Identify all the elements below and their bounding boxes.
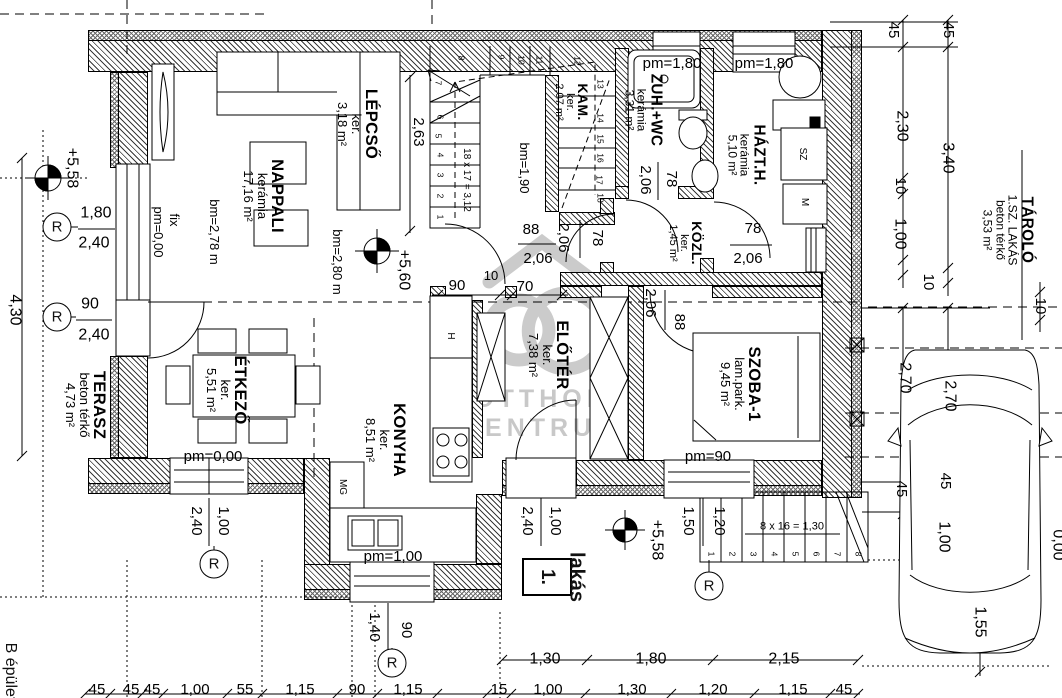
stair-number: 2 (728, 552, 737, 557)
appliance-label: SZ (797, 148, 807, 161)
stair-number: 17 (595, 175, 604, 184)
room-label: NAPPALIkerámia17,16 m² (242, 159, 286, 233)
room-label: ÉTKEZŐker.5,51 m² (205, 355, 249, 424)
dimension-label: 2,70 (941, 380, 958, 411)
wall-segment (545, 75, 559, 212)
radiator-marker: R (695, 572, 724, 601)
dimension-label: 1,30 (617, 682, 646, 698)
stair-number: 1 (707, 552, 716, 557)
stair-number: 14 (596, 113, 605, 122)
dimension-label: 1,00 (533, 682, 562, 698)
watermark-line2: CENTRUM (462, 414, 622, 443)
dimension-label: 1,30 (529, 652, 560, 669)
wall-segment (118, 72, 148, 168)
room-label: KONYHAker.8,51 m² (364, 403, 408, 477)
dimension-label: +5,60 (395, 250, 412, 290)
car-top-view-icon (888, 350, 1052, 653)
dimension-label: fix (167, 214, 181, 227)
stair-number: 6 (812, 552, 821, 557)
wall-segment (700, 48, 714, 198)
wall-segment (472, 300, 483, 458)
dimension-label: 1,00 (547, 506, 563, 535)
dimension-label: 2,06 (733, 251, 762, 267)
dimension-label: +5,58 (648, 520, 665, 560)
dimension-label: 1,00 (935, 521, 952, 552)
stair-formula: 8 x 16 = 1,30 (760, 521, 824, 532)
floor-plan: OTTHON CENTRUM (0, 0, 1062, 698)
dimension-label: 2,40 (78, 328, 109, 345)
dimension-label: 45 (123, 682, 140, 698)
stair-number: 3 (749, 552, 758, 557)
dimension-label: 1,15 (285, 682, 314, 698)
dimension-label: 90 (398, 622, 414, 639)
dimension-label: pm=0,00 (151, 207, 165, 258)
dimension-label: 2,40 (188, 506, 204, 535)
dimension-label: 45 (885, 22, 901, 39)
room-label: TÁROLÓ1.SZ. LAKÁSbeton térkő3,53 m² (981, 195, 1034, 266)
dimension-label: 10 (1032, 298, 1048, 315)
unit-number: 1. (536, 569, 558, 585)
stair-number: 1 (436, 215, 445, 220)
dimension-label: 10 (920, 274, 936, 291)
dimension-label: 1,15 (778, 682, 807, 698)
dimension-label: 45 (144, 682, 161, 698)
wall-segment (560, 272, 822, 286)
dimension-label: 2,63 (410, 117, 426, 146)
otthon-centrum-logo-icon (467, 230, 617, 380)
dimension-label: 78 (663, 171, 679, 188)
wall-segment (118, 356, 148, 458)
dimension-label: 45 (89, 682, 106, 698)
stair-number: 15 (596, 134, 605, 143)
wall-segment (615, 186, 629, 199)
dimension-label: 2,15 (768, 652, 799, 669)
dimension-label: 15 (491, 682, 508, 698)
dimension-label: 1,50 (680, 506, 696, 535)
insulation-strip (502, 485, 822, 496)
room-label: LÉPCSŐker.3,18 m² (336, 89, 380, 159)
dimension-label: 90 (81, 297, 99, 314)
dimension-label: 1,40 (366, 612, 382, 641)
wall-segment (628, 286, 644, 460)
stair-number: 3 (436, 173, 445, 178)
stair-number: 7 (833, 552, 842, 557)
dimension-label: 1,15 (393, 682, 422, 698)
dimension-label: 3,40 (939, 142, 956, 173)
dimension-label: bm=2,80 m (330, 229, 344, 294)
dimension-label: 88 (671, 314, 687, 331)
stair-number: 8 (854, 552, 863, 557)
appliance-label: MG (337, 479, 347, 495)
appliance-label: M (799, 198, 809, 206)
radiator-marker: R (378, 649, 407, 678)
room-label: TERASZbeton térkő4,73 m² (64, 371, 108, 439)
stair-number: 6 (436, 115, 445, 120)
dimension-label: 2,70 (896, 362, 913, 393)
room-label: KÖZL.ker.1,45 m² (666, 221, 704, 265)
dimension-label: 2,06 (642, 288, 658, 317)
building-label: B épület (1, 643, 19, 698)
insulation-strip (88, 483, 304, 494)
dimension-label: 45 (893, 481, 909, 498)
stair-number: 13 (596, 79, 605, 88)
stair-number: 16 (596, 153, 605, 162)
watermark-line1: OTTHON (462, 385, 622, 414)
stair-number: 7 (434, 81, 443, 86)
dimension-label: 2,40 (519, 506, 535, 535)
dimension-label: 2,40 (78, 236, 109, 253)
radiator-marker: R (200, 550, 229, 579)
stair-number: 2 (436, 194, 445, 199)
dimension-label: bm=1,90 (517, 143, 531, 194)
room-label: SZOBA-1lam.park.9,45 m² (719, 346, 763, 421)
insulation-strip (110, 356, 119, 458)
watermark: OTTHON CENTRUM (462, 230, 622, 443)
dimension-label: 45 (940, 22, 956, 39)
dimension-label: pm=90 (685, 449, 731, 465)
dimension-label: 1,20 (698, 682, 727, 698)
dimension-label: 90 (349, 682, 366, 698)
wall-segment (712, 286, 822, 298)
dimension-label: 1,55 (971, 606, 988, 637)
dimension-label: 4,30 (6, 294, 23, 325)
dimension-label: 1,00 (180, 682, 209, 698)
dimension-label: 1,80 (80, 206, 111, 223)
wall-segment (476, 494, 502, 564)
stair-formula: 18 x 17 = 3,12 (461, 148, 471, 212)
dimension-label: 1,00 (891, 218, 908, 249)
insulation-strip (304, 589, 502, 600)
dimension-label: 1,20 (711, 506, 727, 535)
stair-number: 5 (791, 552, 800, 557)
wall-segment (678, 186, 714, 199)
dimension-label: pm=0,00 (184, 449, 243, 465)
wall-segment (505, 286, 517, 298)
insulation-strip (110, 72, 119, 168)
dimension-label: 0,00 (1049, 529, 1062, 560)
dimension-label: 1,80 (635, 652, 666, 669)
wall-segment (430, 286, 446, 298)
dimension-label: +5,58 (63, 148, 80, 188)
unit-name: lakás (565, 552, 588, 602)
dimension-label: 45 (836, 682, 853, 698)
wall-segment (615, 48, 629, 188)
wall-segment (822, 30, 852, 498)
wall-segment (600, 198, 614, 214)
insulation-strip (851, 30, 862, 498)
stair-number: 5 (434, 134, 443, 139)
stair-number: 4 (436, 153, 445, 158)
dimension-label: bm=2,78 m (207, 199, 221, 264)
dimension-label: 78 (745, 221, 762, 237)
dimension-label: pm=1,00 (364, 549, 423, 565)
dimension-label: 1,00 (215, 506, 231, 535)
dimension-label: 55 (237, 682, 254, 698)
dimension-label: 10 (892, 178, 908, 195)
stair-number: 4 (770, 552, 779, 557)
dimension-label: 2,30 (893, 110, 910, 141)
appliance-label: H (445, 332, 455, 339)
wall-segment (560, 286, 602, 298)
dimension-label: 2,06 (637, 165, 653, 194)
dimension-label: 45 (937, 473, 953, 490)
radiator-marker: R (43, 213, 72, 242)
room-label: HÁZT.H.kerámia5,10 m² (726, 125, 767, 186)
radiator-marker: R (43, 303, 72, 332)
insulation-strip (88, 30, 822, 41)
